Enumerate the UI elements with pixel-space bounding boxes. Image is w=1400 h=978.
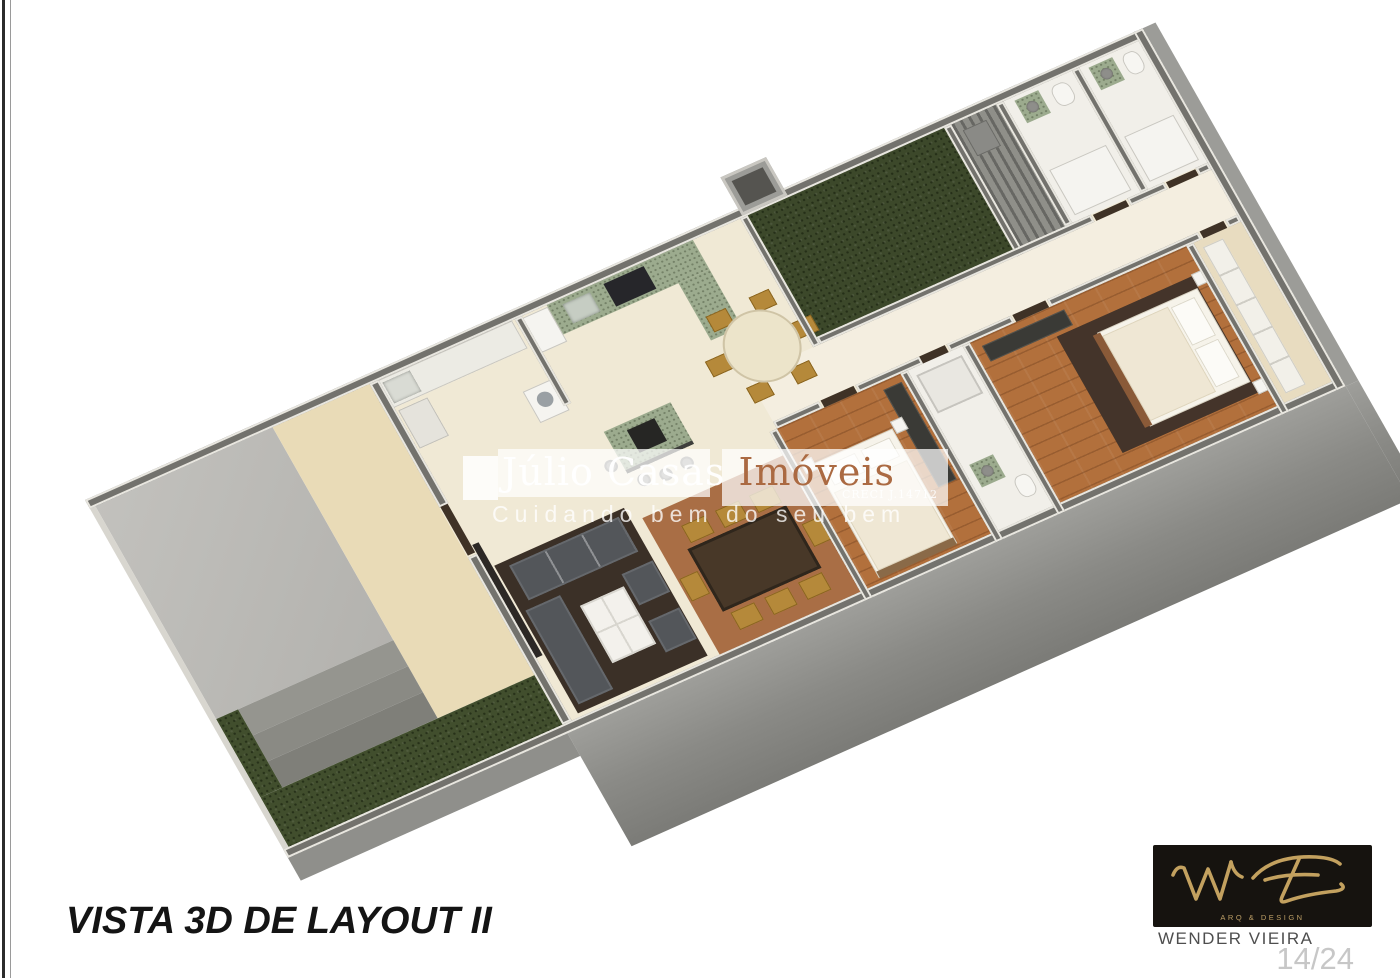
architect-name: WENDER VIEIRA [1158,929,1314,949]
studio-caption: ARQ & DESIGN [1220,913,1304,922]
page-left-border [2,0,11,978]
architect-signature-icon [1161,847,1364,909]
watermark-logo-square [463,456,498,500]
watermark-brand-primary: Júlio Casas [502,450,738,494]
watermark-tagline: Cuidando bem do seu bem [492,501,896,528]
view-title: VISTA 3D DE LAYOUT II [66,900,492,943]
floorplan-3d-scene [85,25,1353,858]
architect-logo-box: ARQ & DESIGN [1153,845,1372,927]
watermark-license: CRECI J.14712 [820,488,938,501]
